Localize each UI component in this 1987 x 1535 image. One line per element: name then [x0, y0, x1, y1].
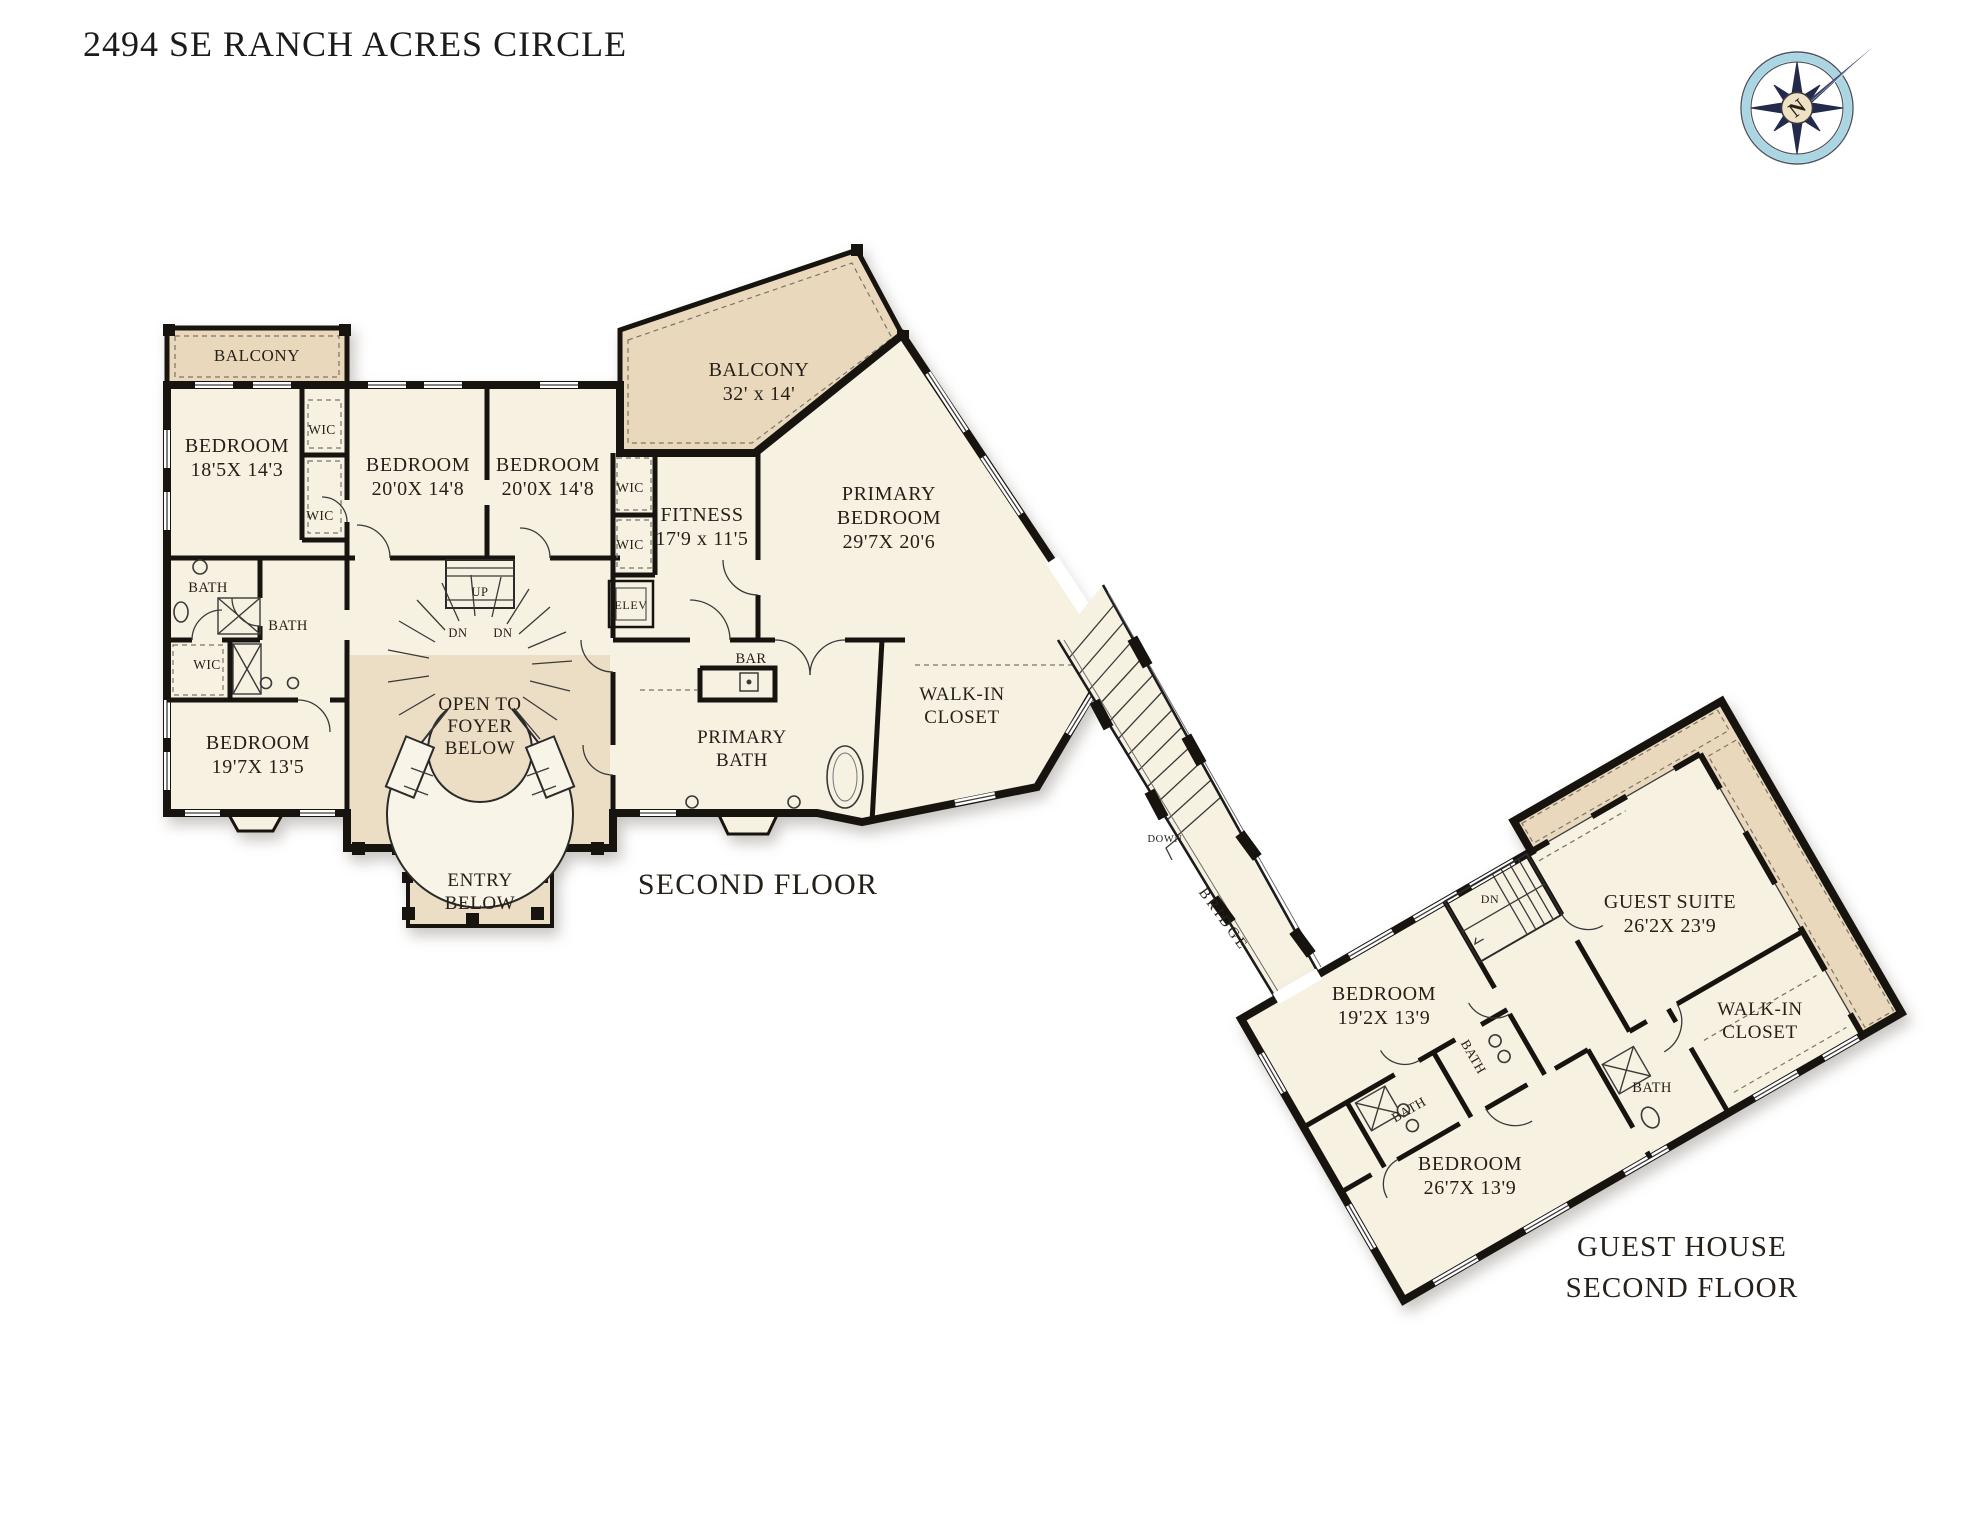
- label-guest-suite-dims: 26'2X 23'9: [1624, 915, 1717, 937]
- label-guest-walkin-2: CLOSET: [1722, 1022, 1797, 1043]
- label-guest-dn: DN: [1481, 892, 1500, 906]
- label-guest-bath: BATH: [1632, 1080, 1672, 1096]
- floorplan-canvas: 2494 SE RANCH ACRES CIRCLE N: [0, 0, 1987, 1535]
- label-primary-bath-2: BATH: [716, 750, 768, 771]
- label-foyer-2: FOYER: [447, 716, 512, 737]
- balcony-post: [339, 324, 351, 336]
- second-floor-label: SECOND FLOOR: [638, 868, 878, 901]
- label-primary-bedroom-dims: 29'7X 20'6: [843, 531, 936, 553]
- bridge: DOWN BRIDGE: [1052, 560, 1321, 999]
- label-balcony-large-name: BALCONY: [709, 359, 810, 381]
- label-up: UP: [471, 585, 488, 599]
- bridge-down-label: DOWN: [1147, 834, 1182, 845]
- label-walkin-1: WALK-IN: [919, 684, 1004, 705]
- bridge-floor: [1058, 585, 1319, 999]
- label-primary-bedroom-2: BEDROOM: [837, 507, 941, 529]
- guest-house-plan: DN GUEST SUITE 26'2X 23'9 BEDROOM 19'2X …: [1224, 701, 1902, 1300]
- balcony-post: [163, 324, 175, 336]
- label-bedroom4-name: BEDROOM: [206, 732, 310, 754]
- label-balcony-large-dims: 32' x 14': [723, 383, 796, 405]
- label-bedroom1-name: BEDROOM: [185, 435, 289, 457]
- label-dn: DN: [493, 626, 512, 640]
- label-wic: WIC: [616, 480, 643, 495]
- guest-house-label-2: SECOND FLOOR: [1566, 1272, 1799, 1304]
- label-guest-bedroom2-dims: 26'7X 13'9: [1424, 1177, 1517, 1199]
- label-primary-bath-1: PRIMARY: [697, 727, 787, 748]
- guest-house-label-1: GUEST HOUSE: [1577, 1231, 1787, 1263]
- label-guest-walkin-1: WALK-IN: [1717, 999, 1802, 1020]
- label-bedroom2-name: BEDROOM: [366, 454, 470, 476]
- main-house-plan: BALCONY BEDROOM 18'5X 14'3 WIC WIC BEDRO…: [163, 244, 1115, 926]
- label-guest-suite-name: GUEST SUITE: [1604, 891, 1736, 913]
- label-guest-bedroom1-dims: 19'2X 13'9: [1338, 1007, 1431, 1029]
- label-fitness-dims: 17'9 x 11'5: [655, 528, 748, 550]
- label-bar: BAR: [735, 651, 766, 667]
- label-bath: BATH: [188, 580, 228, 596]
- balcony-post: [851, 244, 863, 256]
- label-bedroom3-dims: 20'0X 14'8: [502, 478, 595, 500]
- label-primary-bedroom-1: PRIMARY: [842, 483, 936, 505]
- label-wic: WIC: [308, 422, 335, 437]
- label-foyer-3: BELOW: [445, 738, 516, 759]
- label-bedroom3-name: BEDROOM: [496, 454, 600, 476]
- label-dn: DN: [448, 626, 467, 640]
- label-wic: WIC: [306, 508, 333, 523]
- compass-rose: N: [1741, 47, 1873, 164]
- label-walkin-2: CLOSET: [924, 707, 999, 728]
- label-foyer-1: OPEN TO: [438, 694, 521, 715]
- label-wic: WIC: [616, 537, 643, 552]
- label-entry-2: BELOW: [445, 893, 516, 914]
- label-guest-bedroom2-name: BEDROOM: [1418, 1153, 1522, 1175]
- label-fitness-name: FITNESS: [660, 504, 743, 526]
- label-guest-bedroom1-name: BEDROOM: [1332, 983, 1436, 1005]
- label-balcony-small: BALCONY: [214, 346, 300, 365]
- page-title: 2494 SE RANCH ACRES CIRCLE: [83, 24, 627, 64]
- label-bedroom2-dims: 20'0X 14'8: [372, 478, 465, 500]
- label-bath: BATH: [268, 618, 308, 634]
- label-entry-1: ENTRY: [447, 870, 512, 891]
- floorplan-page: 2494 SE RANCH ACRES CIRCLE N: [0, 0, 1987, 1535]
- label-bedroom4-dims: 19'7X 13'5: [212, 756, 305, 778]
- label-wic: WIC: [193, 657, 220, 672]
- label-bedroom1-dims: 18'5X 14'3: [191, 459, 284, 481]
- label-elev: ELEV: [614, 598, 647, 612]
